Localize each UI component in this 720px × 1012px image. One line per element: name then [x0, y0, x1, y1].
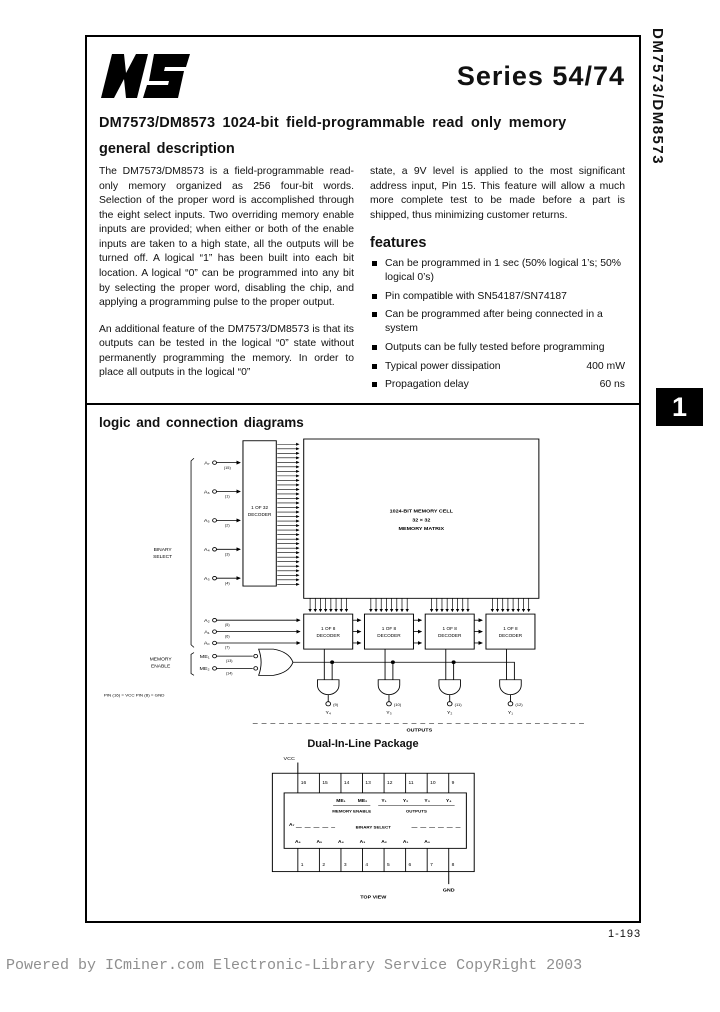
section-tab: 1 [656, 388, 703, 426]
description-paragraph-2: An additional feature of the DM7573/DM85… [99, 323, 354, 381]
feature-text: Pin compatible with SN54187/SN74187 [385, 290, 567, 304]
dip-pin-stubs [298, 773, 449, 871]
datasheet-frame: Series 54/74 DM7573/DM8573 1024-bit fiel… [85, 35, 641, 923]
pin-number: (7) [225, 646, 230, 650]
features-list: Can be programmed in 1 sec (50% logical … [370, 257, 625, 392]
top-view-caption: TOP VIEW [360, 895, 386, 901]
feature-text: Propagation delay [385, 378, 469, 392]
memory-enable-inputs: MEMORY ENABLE ME₁ (13) ME₂ (14) [150, 649, 293, 675]
feature-value: 60 ns [592, 378, 625, 392]
page-number: 1-193 [608, 928, 641, 940]
dip-signal-label: A₃ [360, 839, 366, 844]
pin-number: (15) [224, 466, 231, 470]
memory-block-label: 1024-BIT MEMORY CELL [390, 509, 453, 515]
section-tab-number: 1 [672, 392, 687, 423]
side-part-number-label: DM7573/DM8573 [649, 28, 666, 165]
pin-number: 7 [430, 863, 433, 868]
address-row-inputs: A₇ (15) A₆ (1) A₅ (2) A₄ (3) A₃ (4) [204, 461, 240, 586]
output-label: Y₁ [508, 710, 514, 716]
pin-number: (5) [225, 623, 230, 627]
pin-number: 3 [344, 863, 347, 868]
pin-number: 1 [301, 863, 304, 868]
decoder8-label: 1 OF 8 [443, 626, 458, 631]
watermark-text: Powered by ICminer.com Electronic-Librar… [6, 957, 582, 974]
section-divider [87, 403, 639, 405]
input-label: A₇ [204, 461, 210, 467]
feature-text: Can be programmed after being connected … [385, 308, 625, 335]
dip-signal-label: A₆ [295, 839, 301, 844]
dip-signal-label: A₄ [338, 839, 344, 844]
output-terminals: (9) Y₄ (10) Y₃ (11) Y₂ (12) Y₁ [325, 702, 523, 716]
feature-item: Typical power dissipation400 mW [370, 360, 625, 374]
header: Series 54/74 [87, 37, 639, 99]
bullet-square-icon [372, 261, 377, 266]
decoder8-label: DECODER [499, 633, 522, 638]
decoder32-label: 1 OF 32 [251, 505, 268, 510]
binary-select-text: SELECT [153, 554, 172, 559]
input-label: ME₂ [200, 666, 210, 672]
feature-item: Can be programmed in 1 sec (50% logical … [370, 257, 625, 284]
output-label: Y₃ [386, 710, 392, 716]
dip-signal-label: Y₂ [403, 798, 408, 803]
output-label: Y₄ [325, 710, 331, 716]
pin-number: 9 [452, 780, 455, 785]
memory-block-label: MEMORY MATRIX [399, 526, 445, 532]
pin-number: (14) [226, 672, 233, 676]
input-label: A₆ [204, 490, 210, 496]
feature-value: 400 mW [578, 360, 625, 374]
bullet-square-icon [372, 294, 377, 299]
dip-signal-label: A₂ [381, 839, 387, 844]
description-paragraph-1: The DM7573/DM8573 is a field-programmabl… [99, 165, 354, 311]
pin-number: (9) [333, 702, 339, 707]
vcc-label: VCC [284, 756, 296, 762]
decoder8-label: DECODER [377, 633, 400, 638]
input-label: ME₁ [200, 654, 210, 660]
diagrams-heading: logic and connection diagrams [99, 415, 627, 430]
dip-signal-label: ME₂ [358, 798, 367, 803]
pin-number: (10) [394, 702, 402, 707]
input-label: A₃ [204, 576, 210, 582]
pin-number: 8 [452, 863, 455, 868]
pin-number: 13 [365, 780, 371, 785]
description-columns: The DM7573/DM8573 is a field-programmabl… [99, 165, 625, 397]
feature-text: Can be programmed in 1 sec (50% logical … [385, 257, 625, 284]
bullet-square-icon [372, 364, 377, 369]
pin-number: 15 [322, 780, 328, 785]
decoder8-label: DECODER [317, 633, 340, 638]
feature-text: Outputs can be fully tested before progr… [385, 341, 604, 355]
output-gates [293, 649, 521, 706]
decoder8-label: 1 OF 8 [503, 626, 518, 631]
pin-number: 2 [322, 863, 325, 868]
dip-signal-label: A₅ [317, 839, 323, 844]
dip-package-title: Dual-In-Line Package [87, 738, 639, 750]
pin-number: (6) [225, 635, 230, 639]
dip-signal-label: A₀ [424, 839, 430, 844]
pin-number: (12) [515, 702, 523, 707]
dip-signal-label: Y₁ [381, 798, 386, 803]
dip-signal-label: Y₃ [424, 798, 430, 803]
memory-block-label: 32 × 32 [412, 518, 430, 524]
memory-enable-text: MEMORY [150, 657, 172, 662]
pin-number: 11 [409, 780, 414, 785]
pin-number: (3) [225, 553, 230, 557]
dip-signal-label: Y₄ [446, 798, 452, 803]
binary-select-text: BINARY [154, 547, 172, 552]
memory-enable-text: ENABLE [151, 664, 170, 669]
pin-number: 6 [409, 863, 412, 868]
input-label: A₂ [204, 618, 210, 624]
binary-select-caption: BINARY SELECT [356, 825, 392, 830]
input-label: A₁ [204, 630, 210, 636]
gnd-label: GND [443, 888, 455, 894]
description-column-right: state, a 9V level is applied to the most… [370, 165, 625, 397]
feature-item: Pin compatible with SN54187/SN74187 [370, 290, 625, 304]
pin-number: (13) [226, 660, 233, 664]
bullet-square-icon [372, 382, 377, 387]
bullet-square-icon [372, 345, 377, 350]
series-title: Series 54/74 [457, 61, 625, 92]
pin-number: 10 [430, 780, 436, 785]
feature-item: Propagation delay60 ns [370, 378, 625, 392]
pin-number: 14 [344, 780, 350, 785]
part-title: DM7573/DM8573 1024-bit field-programmabl… [99, 115, 627, 131]
pin-number: 5 [387, 863, 390, 868]
pin-number: 4 [365, 863, 368, 868]
feature-text: Typical power dissipation [385, 360, 501, 374]
pin-number: 12 [387, 780, 393, 785]
input-label: A₀ [204, 641, 210, 647]
feature-item: Outputs can be fully tested before progr… [370, 341, 625, 355]
bullet-square-icon [372, 312, 377, 317]
dip-connection-diagram: VCC GND 16 15 14 13 12 11 10 9 1 2 3 4 5… [96, 750, 630, 902]
binary-select-label: BINARY SELECT [153, 458, 194, 647]
description-column-left: The DM7573/DM8573 is a field-programmabl… [99, 165, 354, 397]
decoder32-label: DECODER [248, 512, 271, 517]
pin-number: (4) [225, 582, 230, 586]
output-label: Y₂ [447, 710, 453, 716]
decoder8-label: 1 OF 8 [321, 626, 336, 631]
ns-logo-icon [99, 53, 191, 99]
outputs-caption: OUTPUTS [407, 728, 433, 734]
dip-signal-label: A₁ [403, 839, 409, 844]
input-label: A₅ [204, 519, 210, 525]
pin-number: (1) [225, 495, 230, 499]
features-heading: features [370, 235, 625, 251]
dip-signal-label: A₇ [289, 822, 295, 827]
memory-to-decoder-lines [310, 598, 529, 611]
pin-number: 16 [301, 780, 307, 785]
decoder8-label: 1 OF 8 [382, 626, 397, 631]
pin-number: (2) [225, 524, 230, 528]
outputs-caption: OUTPUTS [406, 809, 427, 814]
power-pins-note: PIN (16) = VCC PIN (8) = GND [104, 693, 165, 698]
memory-enable-caption: MEMORY ENABLE [332, 809, 371, 814]
general-description-heading: general description [99, 141, 627, 157]
dip-signal-label: ME₁ [336, 798, 345, 803]
pin-number: (11) [455, 702, 463, 707]
decoder8-label: DECODER [438, 633, 461, 638]
description-paragraph-3: state, a 9V level is applied to the most… [370, 165, 625, 223]
input-label: A₄ [204, 547, 210, 553]
logic-diagram: 1 OF 32 DECODER 1024-BIT MEMORY CELL 32 … [96, 432, 630, 734]
decoder-to-memory-lines [277, 444, 299, 584]
feature-item: Can be programmed after being connected … [370, 308, 625, 335]
